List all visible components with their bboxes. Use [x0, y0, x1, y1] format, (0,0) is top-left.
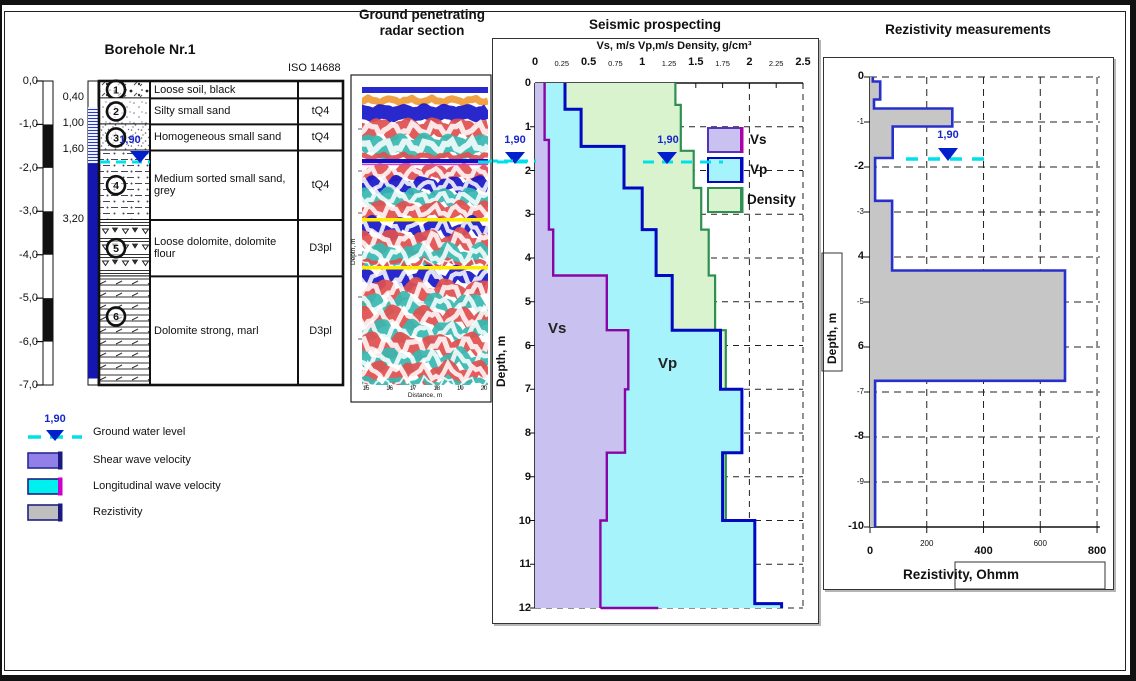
- gpr-water-line: [362, 159, 488, 163]
- layer-classification-cell: tQ4: [298, 124, 343, 150]
- gpr-x-tick-label: 18: [429, 386, 445, 392]
- legend-swatch-cap-long: [58, 478, 63, 496]
- seismic-legend-label: Density: [747, 192, 796, 207]
- gpr-water-line-magenta: [362, 164, 488, 166]
- legend-item-label: Ground water level: [93, 426, 185, 438]
- seismic-depth-tick-label: 12: [505, 602, 531, 614]
- resistivity-title: Rezistivity measurements: [823, 22, 1113, 37]
- seismic-x-tick-label: 1.5: [681, 56, 711, 68]
- seismic-x-tick-label: 1.75: [708, 59, 738, 68]
- resistivity-y-tick-label: -10: [834, 520, 864, 532]
- borehole-depth-tick-label: -2,0: [2, 162, 38, 174]
- layer-number-text: 2: [113, 106, 119, 118]
- seismic-depth-tick-label: 11: [505, 558, 531, 570]
- iso-standard-label: ISO 14688: [288, 62, 341, 74]
- seismic-top-axis-label: Vs, m/s Vp,m/s Density, g/cm³: [540, 40, 808, 52]
- borehole-depth-tick-label: -3,0: [2, 205, 38, 217]
- legend-swatch-shear: [28, 453, 60, 468]
- legend-swatch-rez: [28, 505, 60, 520]
- layer-description-cell: Loose dolomite, dolomite flour: [154, 220, 294, 276]
- seismic-x-tick-label: 0.75: [600, 59, 630, 68]
- gpr-horizon-yellow-2: [362, 266, 488, 270]
- seismic-depth-tick-label: 9: [505, 471, 531, 483]
- gpr-x-tick-label: 16: [382, 386, 398, 392]
- seismic-x-tick-label: 0: [520, 56, 550, 68]
- seismic-x-tick-label: 1: [627, 56, 657, 68]
- gpr-x-tick-label: 17: [405, 386, 421, 392]
- resistivity-y-tick-label: 4: [834, 250, 864, 262]
- seismic-water-label-mid: 1,90: [650, 134, 686, 146]
- legend-item-label: Shear wave velocity: [93, 454, 191, 466]
- layer-description-cell: Homogeneous small sand: [154, 124, 294, 150]
- seismic-depth-tick-label: 4: [505, 252, 531, 264]
- gpr-y-axis-label: Depth, m: [350, 205, 357, 265]
- seismic-depth-tick-label: 7: [505, 383, 531, 395]
- gpr-horizon-yellow-1: [362, 218, 488, 222]
- borehole-depth-tick-label: 0,0: [2, 75, 38, 87]
- seismic-x-tick-label: 1.25: [654, 59, 684, 68]
- seismic-water-label-left: 1,90: [497, 134, 533, 146]
- borehole-contact-depth-label: 1,00: [44, 117, 84, 129]
- legend-swatch-long: [28, 479, 60, 494]
- borehole-contact-depth-label: 1,60: [44, 143, 84, 155]
- seismic-area-label-vs: Vs: [548, 320, 566, 337]
- geophysical-survey-figure: 123456 Borehole Nr.1 ISO 14688 1,90 Grou…: [0, 0, 1136, 681]
- resistivity-y-tick-label: 0: [834, 70, 864, 82]
- borehole-water-level-label: 1,90: [110, 134, 150, 146]
- gpr-x-tick-label: 15: [358, 386, 374, 392]
- legend-item-label: Rezistivity: [93, 506, 143, 518]
- layer-classification-cell: tQ4: [298, 98, 343, 124]
- seismic-depth-tick-label: 6: [505, 340, 531, 352]
- borehole-contact-depth-label: 0,40: [44, 91, 84, 103]
- layer-number-text: 5: [113, 243, 119, 255]
- seismic-depth-tick-label: 10: [505, 515, 531, 527]
- gpr-band: [360, 98, 488, 103]
- gpr-x-tick-label: 19: [452, 386, 468, 392]
- seismic-legend-label: Vs: [750, 132, 767, 147]
- resistivity-x-axis-label: Rezistivity, Ohmm: [903, 567, 1019, 582]
- seismic-x-tick-label: 2.5: [788, 56, 818, 68]
- resistivity-x-tick-label: 200: [905, 539, 949, 548]
- seismic-title: Seismic prospecting: [492, 17, 818, 32]
- borehole-depth-tick-label: -5,0: [2, 292, 38, 304]
- resistivity-y-tick-label: -8: [834, 430, 864, 442]
- seismic-depth-tick-label: 8: [505, 427, 531, 439]
- borehole-strip-water-zone: [88, 164, 98, 379]
- gpr-band: [360, 110, 488, 115]
- resistivity-y-axis-label: Depth, m: [825, 262, 839, 364]
- seismic-depth-tick-label: 2: [505, 165, 531, 177]
- seismic-panel-box: [492, 38, 819, 624]
- resistivity-x-tick-label: 600: [1018, 539, 1062, 548]
- gpr-x-axis-label: Distance, m: [375, 392, 475, 399]
- borehole-depth-tick-label: -7,0: [2, 379, 38, 391]
- layer-classification-cell: tQ4: [298, 150, 343, 219]
- gpr-art-group: [360, 90, 488, 389]
- resistivity-x-tick-label: 0: [848, 545, 892, 557]
- borehole-depth-tick-label: -6,0: [2, 336, 38, 348]
- legend-swatch-cap-rez: [58, 504, 63, 522]
- legend-item-label: Longitudinal wave velocity: [93, 480, 221, 492]
- borehole-title: Borehole Nr.1: [55, 41, 245, 57]
- legend-water-value: 1,90: [37, 413, 73, 425]
- layer-number-text: 6: [113, 311, 119, 323]
- layer-description-cell: Silty small sand: [154, 98, 294, 124]
- seismic-legend-label: Vp: [750, 162, 767, 177]
- legend-swatch-cap-shear: [58, 452, 63, 470]
- seismic-depth-tick-label: 5: [505, 296, 531, 308]
- seismic-x-tick-label: 2: [734, 56, 764, 68]
- borehole-contact-depth-label: 3,20: [44, 213, 84, 225]
- borehole-scale-bar-black-segment: [43, 298, 53, 341]
- resistivity-y-tick-label: -3: [834, 207, 864, 216]
- seismic-area-label-vp: Vp: [658, 355, 677, 372]
- resistivity-y-tick-label: -7: [834, 387, 864, 396]
- seismic-depth-tick-label: 0: [505, 77, 531, 89]
- borehole-depth-tick-label: -4,0: [2, 249, 38, 261]
- layer-description-cell: Loose soil, black: [154, 81, 294, 98]
- seismic-depth-tick-label: 1: [505, 121, 531, 133]
- layer-classification-cell: D3pl: [298, 220, 343, 276]
- resistivity-x-tick-label: 400: [962, 545, 1006, 557]
- layer-number-text: 4: [113, 180, 119, 192]
- resistivity-panel-box: [823, 57, 1114, 590]
- seismic-x-tick-label: 0.25: [547, 59, 577, 68]
- resistivity-water-label: 1,90: [931, 129, 965, 141]
- seismic-depth-tick-label: 3: [505, 208, 531, 220]
- borehole-strip-striped-zone: [88, 107, 98, 163]
- resistivity-x-tick-label: 800: [1075, 545, 1119, 557]
- resistivity-y-tick-label: -9: [834, 477, 864, 486]
- gpr-title-line2: radar section: [338, 23, 506, 38]
- layer-classification-cell: D3pl: [298, 276, 343, 385]
- lithology-pattern-cell: [99, 276, 150, 385]
- gpr-x-tick-label: 20: [476, 386, 492, 392]
- seismic-x-tick-label: 2.25: [761, 59, 791, 68]
- seismic-x-tick-label: 0.5: [574, 56, 604, 68]
- resistivity-y-tick-label: -1: [834, 117, 864, 126]
- borehole-depth-tick-label: -1,0: [2, 118, 38, 130]
- layer-description-cell: Medium sorted small sand, grey: [154, 150, 294, 219]
- layer-number-text: 1: [113, 84, 119, 96]
- gpr-title-line1: Ground penetrating: [338, 7, 506, 22]
- layer-description-cell: Dolomite strong, marl: [154, 276, 294, 385]
- resistivity-y-tick-label: -2: [834, 160, 864, 172]
